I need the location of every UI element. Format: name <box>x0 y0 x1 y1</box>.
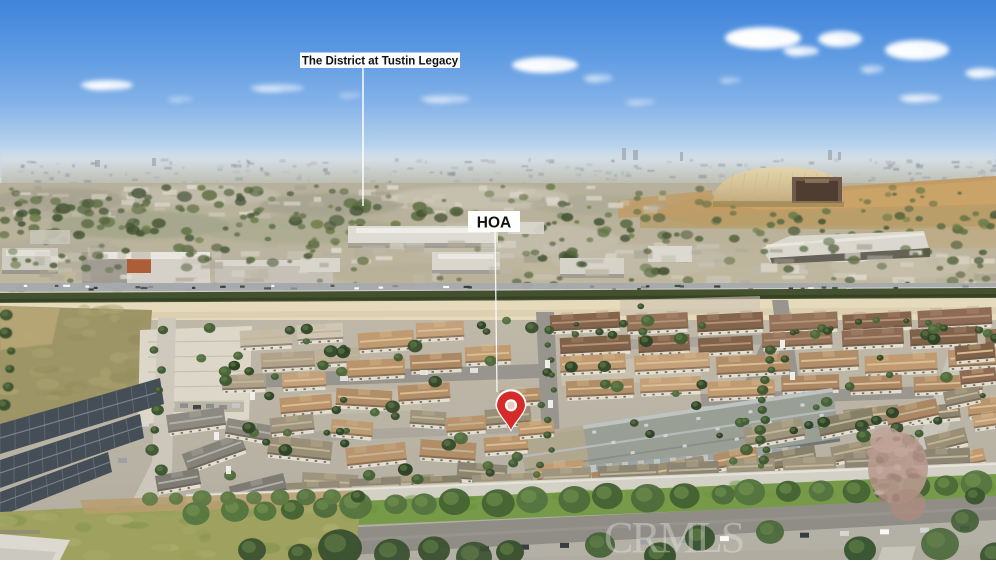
svg-text:The District at Tustin Legacy: The District at Tustin Legacy <box>302 56 459 68</box>
svg-text:HOA: HOA <box>477 215 511 232</box>
svg-text:CRMLS: CRMLS <box>604 513 743 560</box>
